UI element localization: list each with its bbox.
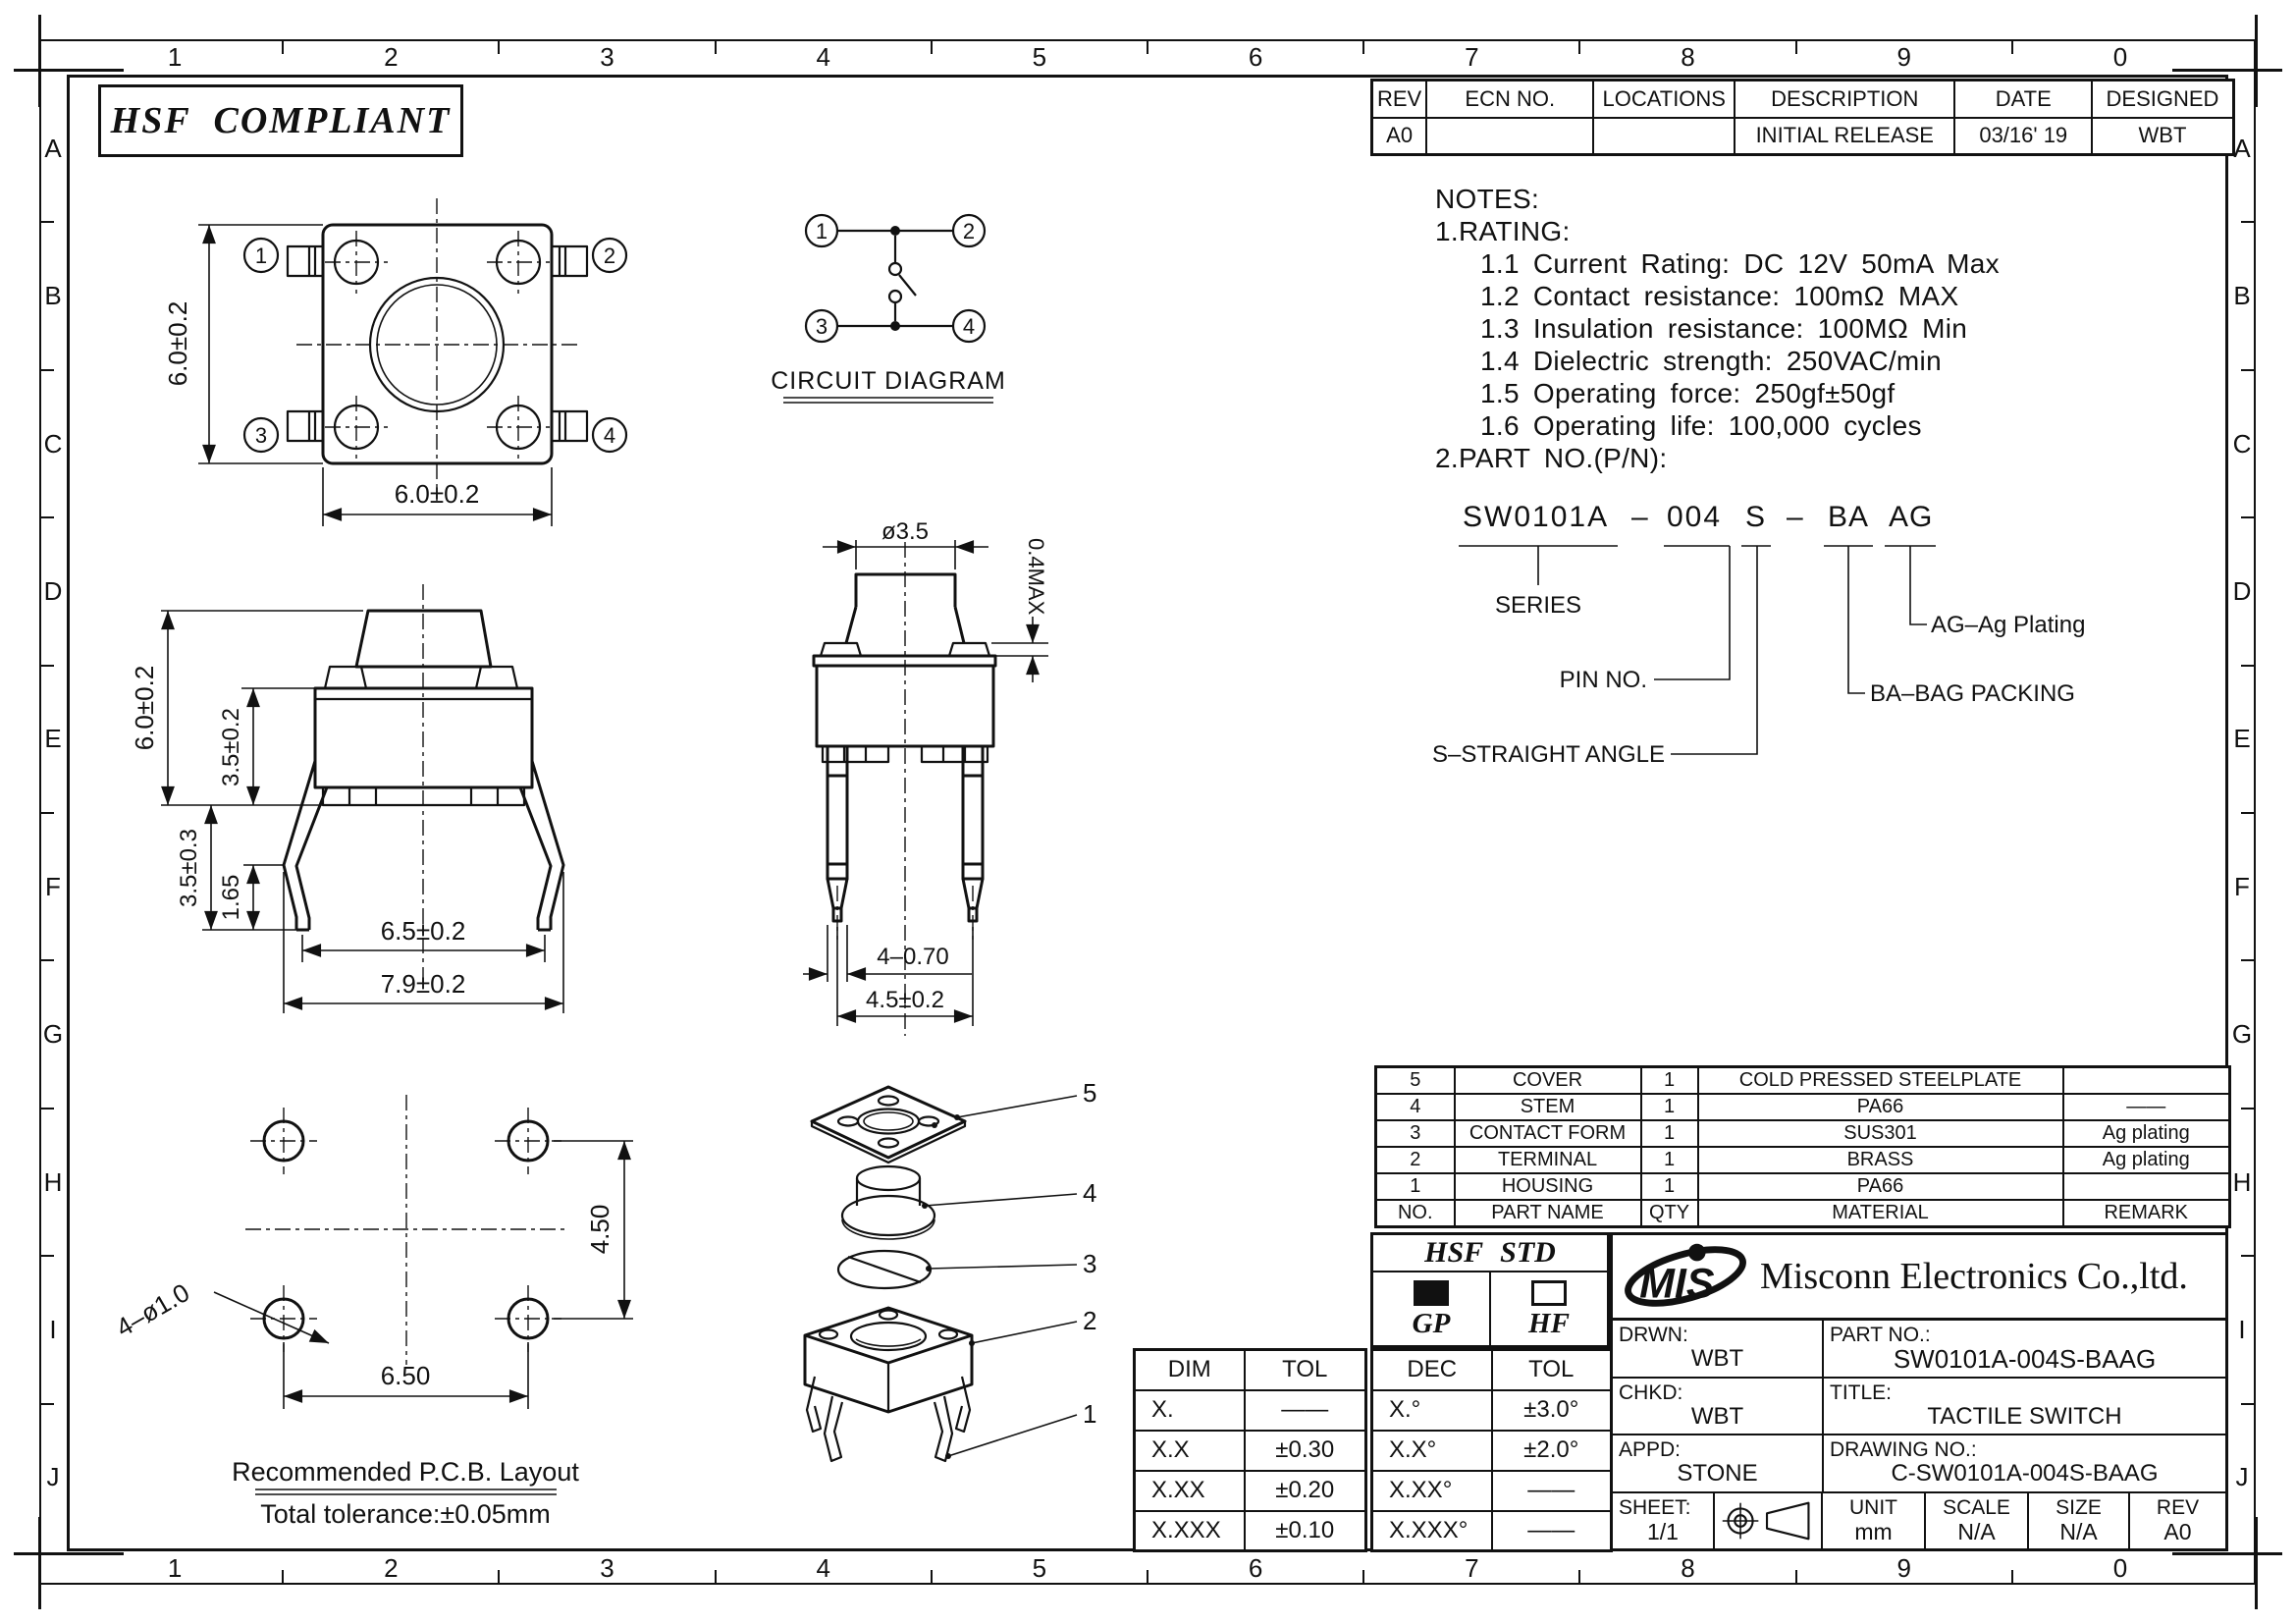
ruler-letter: G xyxy=(2228,960,2256,1108)
ruler-letter: I xyxy=(2228,1256,2256,1403)
note-item: 1.4 Dielectric strength: 250VAC/min xyxy=(1435,345,2000,377)
bom-qty: 1 xyxy=(1641,1067,1698,1094)
tol-cell: ±0.10 xyxy=(1245,1511,1366,1551)
ruler-number: 6 xyxy=(1148,1551,1363,1585)
company-name: Misconn Electronics Co.,ltd. xyxy=(1760,1255,2188,1298)
contact-point xyxy=(889,291,901,302)
pcb-subtitle: Total tolerance:±0.05mm xyxy=(260,1499,550,1529)
pn-dash: – xyxy=(1787,501,1803,533)
tol-cell: —— xyxy=(1492,1511,1612,1551)
svg-text:5: 5 xyxy=(1083,1078,1096,1108)
cover-part xyxy=(812,1087,965,1163)
bom-no: 4 xyxy=(1376,1094,1455,1120)
col-header: DESIGNED xyxy=(2092,81,2233,118)
chkd-row: CHKD: WBT TITLE: TACTILE SWITCH xyxy=(1613,1379,2225,1436)
tol-cell: ±2.0° xyxy=(1492,1431,1612,1471)
cell-locations xyxy=(1593,118,1735,155)
pn-pin-label: PIN NO. xyxy=(1560,667,1647,693)
title-block: MIS Misconn Electronics Co.,ltd. DRWN: W… xyxy=(1610,1232,2228,1551)
chkd-value: WBT xyxy=(1613,1399,1822,1435)
notes-part-heading: 2.PART NO.(P/N): xyxy=(1435,442,2000,474)
sheet-row: SHEET: 1/1 UNIT mm SCALE N/A xyxy=(1613,1493,2225,1548)
bom-material: COLD PRESSED STEELPLATE xyxy=(1698,1067,2063,1094)
bom-part: CONTACT FORM xyxy=(1455,1120,1641,1147)
ruler-number: 5 xyxy=(932,39,1148,75)
bom-row: 5 COVER 1 COLD PRESSED STEELPLATE xyxy=(1376,1067,2230,1094)
dim-outer-span: 7.9±0.2 xyxy=(381,969,466,999)
hf-empty-square-icon xyxy=(1531,1280,1567,1306)
ruler-number: 6 xyxy=(1148,39,1363,75)
dim-cell: X.X xyxy=(1135,1431,1245,1471)
dec-cell: X.XX° xyxy=(1372,1471,1492,1511)
bom-qty: 1 xyxy=(1641,1094,1698,1120)
ruler-letter: H xyxy=(39,1109,67,1256)
tol-cell: ±0.20 xyxy=(1245,1471,1366,1511)
top-bump xyxy=(325,667,366,688)
bom-qty: 1 xyxy=(1641,1147,1698,1173)
top-view: 1 2 3 4 6.0±0.2 6.0±0.2 xyxy=(128,177,677,569)
bom-no: 3 xyxy=(1376,1120,1455,1147)
bom-header-row: NO. PART NAME QTY MATERIAL REMARK xyxy=(1376,1200,2230,1227)
col-header: TOL xyxy=(1492,1350,1612,1390)
dim-cell: X.XXX xyxy=(1135,1511,1245,1551)
cell-ecn xyxy=(1426,118,1593,155)
exploded-view: 5 4 3 2 1 xyxy=(785,1060,1139,1551)
unit-cell: UNIT mm xyxy=(1823,1493,1926,1548)
tol-header-row: DEC TOL xyxy=(1372,1350,1612,1390)
svg-text:3: 3 xyxy=(255,423,267,448)
dec-tolerance-table: DEC TOL X.°±3.0° X.X°±2.0° X.XX°—— X.XXX… xyxy=(1370,1348,1613,1552)
pcb-layout: 4–ø1.0 6.50 4.50 Recommended P.C.B. Layo… xyxy=(98,1060,667,1551)
tol-cell: ±0.30 xyxy=(1245,1431,1366,1471)
drawing-sheet: 1 2 3 4 5 6 7 8 9 0 1 2 3 4 5 6 7 8 9 0 … xyxy=(0,0,2296,1624)
ruler-number: 1 xyxy=(67,1551,283,1585)
contact-point xyxy=(889,263,901,275)
col-header: LOCATIONS xyxy=(1593,81,1735,118)
ruler-bottom: 1 2 3 4 5 6 7 8 9 0 xyxy=(67,1551,2228,1585)
junction-dot xyxy=(890,321,900,331)
ruler-letter: E xyxy=(2228,666,2256,813)
pn-pin: 004 xyxy=(1667,501,1722,533)
dec-cell: X.° xyxy=(1372,1390,1492,1431)
svg-text:2: 2 xyxy=(963,219,975,244)
ruler-letter: I xyxy=(39,1256,67,1403)
dec-cell: X.XXX° xyxy=(1372,1511,1492,1551)
drawing-no-value: C-SW0101A-004S-BAAG xyxy=(1824,1456,2225,1491)
title-value: TACTILE SWITCH xyxy=(1824,1399,2225,1435)
dim-width: 6.0±0.2 xyxy=(395,479,480,509)
ruler-number: 9 xyxy=(1796,39,2012,75)
col-header: DEC xyxy=(1372,1350,1492,1390)
appd-cell: APPD: STONE xyxy=(1613,1435,1824,1491)
appd-value: STONE xyxy=(1613,1456,1822,1491)
hsf-std-title: HSF STD xyxy=(1373,1235,1607,1272)
top-bump xyxy=(821,643,861,656)
bom-no: 5 xyxy=(1376,1067,1455,1094)
svg-text:4: 4 xyxy=(1083,1178,1096,1208)
part-no-value: SW0101A-004S-BAAG xyxy=(1824,1341,2225,1377)
revision-table: REV ECN NO. LOCATIONS DESCRIPTION DATE D… xyxy=(1370,79,2235,156)
side-view: ø3.5 0.4MAX 4–0.70 4.5±0.2 xyxy=(766,520,1090,1051)
hsf-std-box: HSF STD GP HF xyxy=(1370,1232,1610,1348)
note-item: 1.5 Operating force: 250gf±50gf xyxy=(1435,377,2000,409)
unit-value: mm xyxy=(1823,1516,1924,1548)
ruler-number: 8 xyxy=(1579,1551,1795,1585)
dim-holes: 4–ø1.0 xyxy=(111,1277,194,1342)
pn-angle-label: S–STRAIGHT ANGLE xyxy=(1432,741,1665,768)
svg-text:1: 1 xyxy=(816,219,828,244)
dim-cell: X.XX xyxy=(1135,1471,1245,1511)
bom-part: TERMINAL xyxy=(1455,1147,1641,1173)
notes-rating-heading: 1.RATING: xyxy=(1435,215,2000,247)
rev-value: A0 xyxy=(2130,1516,2225,1548)
rev-cell: REV A0 xyxy=(2130,1493,2225,1548)
tol-cell: ±3.0° xyxy=(1492,1390,1612,1431)
bom-no: 2 xyxy=(1376,1147,1455,1173)
hf-label: HF xyxy=(1528,1308,1570,1340)
ruler-number: 7 xyxy=(1363,39,1579,75)
bom-row: 1 HOUSING 1 PA66 xyxy=(1376,1173,2230,1200)
revision-header-row: REV ECN NO. LOCATIONS DESCRIPTION DATE D… xyxy=(1372,81,2234,118)
tol-header-row: DIM TOL xyxy=(1135,1350,1366,1390)
pn-plating: AG xyxy=(1889,501,1933,533)
chkd-cell: CHKD: WBT xyxy=(1613,1379,1824,1435)
svg-text:3: 3 xyxy=(816,314,828,339)
bom-remark xyxy=(2063,1067,2230,1094)
svg-text:3: 3 xyxy=(1083,1249,1096,1278)
bom-table: 5 COVER 1 COLD PRESSED STEELPLATE 4 STEM… xyxy=(1374,1065,2231,1228)
circuit-wires xyxy=(837,231,953,326)
pn-packing-label: BA–BAG PACKING xyxy=(1870,680,2075,707)
notes-block: NOTES: 1.RATING: 1.1 Current Rating: DC … xyxy=(1435,183,2000,474)
dim-pitch-h: 6.50 xyxy=(381,1361,431,1390)
gp-label: GP xyxy=(1413,1308,1451,1340)
dim-pin-width: 4–0.70 xyxy=(877,944,948,970)
dim-leg-tip: 1.65 xyxy=(218,875,244,921)
tol-cell: —— xyxy=(1245,1390,1366,1431)
svg-text:1: 1 xyxy=(255,244,267,268)
col-header: MATERIAL xyxy=(1698,1200,2063,1227)
bom-part: HOUSING xyxy=(1455,1173,1641,1200)
ruler-letter: B xyxy=(39,222,67,369)
bom-row: 3 CONTACT FORM 1 SUS301 Ag plating xyxy=(1376,1120,2230,1147)
ruler-right: A B C D E F G H I J xyxy=(2228,75,2256,1551)
bom-material: SUS301 xyxy=(1698,1120,2063,1147)
ruler-number: 0 xyxy=(2012,1551,2228,1585)
circuit-title: CIRCUIT DIAGRAM xyxy=(771,367,1006,395)
bom-qty: 1 xyxy=(1641,1120,1698,1147)
col-header: PART NAME xyxy=(1455,1200,1641,1227)
scale-cell: SCALE N/A xyxy=(1926,1493,2029,1548)
bom-remark: —— xyxy=(2063,1094,2230,1120)
ruler-letter: D xyxy=(39,517,67,665)
bom-qty: 1 xyxy=(1641,1173,1698,1200)
pn-plating-label: AG–Ag Plating xyxy=(1931,612,2085,638)
title-cell: TITLE: TACTILE SWITCH xyxy=(1824,1379,2225,1435)
col-header: DATE xyxy=(1954,81,2092,118)
col-header: NO. xyxy=(1376,1200,1455,1227)
svg-text:2: 2 xyxy=(1083,1306,1096,1335)
size-value: N/A xyxy=(2029,1516,2128,1548)
notes-heading: NOTES: xyxy=(1435,183,2000,215)
size-cell: SIZE N/A xyxy=(2029,1493,2130,1548)
bom-material: BRASS xyxy=(1698,1147,2063,1173)
ruler-number: 2 xyxy=(283,1551,499,1585)
col-header: ECN NO. xyxy=(1426,81,1593,118)
bom-part: STEM xyxy=(1455,1094,1641,1120)
dim-total-height: 6.0±0.2 xyxy=(130,666,159,751)
ruler-number: 3 xyxy=(499,39,715,75)
cell-rev: A0 xyxy=(1372,118,1427,155)
ruler-letter: C xyxy=(39,370,67,517)
dim-tolerance-table: DIM TOL X.—— X.X±0.30 X.XX±0.20 X.XXX±0.… xyxy=(1133,1348,1367,1552)
bom-remark xyxy=(2063,1173,2230,1200)
ruler-letter: J xyxy=(39,1404,67,1551)
part-number-diagram: SW0101A – 004 S – BA AG SERIES PIN NO. S… xyxy=(1374,471,2120,785)
top-bump xyxy=(476,667,517,688)
junction-dot xyxy=(890,226,900,236)
ruler-number: 4 xyxy=(716,1551,932,1585)
pcb-title: Recommended P.C.B. Layout xyxy=(232,1457,579,1487)
misconn-logo-icon: MIS xyxy=(1613,1236,1760,1317)
ruler-number: 5 xyxy=(932,1551,1148,1585)
ruler-number: 7 xyxy=(1363,1551,1579,1585)
cell-description: INITIAL RELEASE xyxy=(1735,118,1954,155)
drwn-cell: DRWN: WBT xyxy=(1613,1321,1824,1377)
col-header: DESCRIPTION xyxy=(1735,81,1954,118)
dim-leg-length: 3.5±0.3 xyxy=(176,829,202,907)
col-header: TOL xyxy=(1245,1350,1366,1390)
pn-series-label: SERIES xyxy=(1495,592,1581,619)
note-item: 1.1 Current Rating: DC 12V 50mA Max xyxy=(1435,247,2000,280)
ruler-letter: F xyxy=(39,813,67,960)
sheet-cell: SHEET: 1/1 xyxy=(1613,1493,1715,1548)
bom-row: 4 STEM 1 PA66 —— xyxy=(1376,1094,2230,1120)
projection-symbol-cell xyxy=(1715,1493,1823,1548)
bom-remark: Ag plating xyxy=(2063,1120,2230,1147)
ruler-letter: C xyxy=(2228,370,2256,517)
dec-cell: X.X° xyxy=(1372,1431,1492,1471)
ruler-number: 8 xyxy=(1579,39,1795,75)
ruler-letter: F xyxy=(2228,813,2256,960)
ruler-number: 2 xyxy=(283,39,499,75)
top-bump xyxy=(949,643,989,656)
pn-series: SW0101A xyxy=(1463,501,1609,533)
cell-date: 03/16' 19 xyxy=(1954,118,2092,155)
pn-dash: – xyxy=(1631,501,1648,533)
svg-text:2: 2 xyxy=(604,244,615,268)
ruler-letter: D xyxy=(2228,517,2256,665)
col-header: REMARK xyxy=(2063,1200,2230,1227)
drawing-no-cell: DRAWING NO.: C-SW0101A-004S-BAAG xyxy=(1824,1435,2225,1491)
front-view: 6.0±0.2 3.5±0.2 3.5±0.3 1.65 6.5±0.2 7.9… xyxy=(137,569,609,1031)
note-item: 1.6 Operating life: 100,000 cycles xyxy=(1435,409,2000,442)
dimension-lines xyxy=(284,1141,633,1409)
housing-part xyxy=(805,1308,972,1461)
dim-body-height: 3.5±0.2 xyxy=(218,708,244,786)
svg-text:4: 4 xyxy=(963,314,975,339)
ruler-letter: B xyxy=(2228,222,2256,369)
circuit-diagram: 1 2 3 4 CIRCUIT DIAGRAM xyxy=(775,191,1090,417)
dim-height: 6.0±0.2 xyxy=(163,301,192,387)
ruler-number: 1 xyxy=(67,39,283,75)
gp-filled-square-icon xyxy=(1414,1280,1449,1306)
bom-part: COVER xyxy=(1455,1067,1641,1094)
tol-cell: —— xyxy=(1492,1471,1612,1511)
dim-pitch-v: 4.50 xyxy=(585,1205,614,1255)
dim-pin-pitch: 4.5±0.2 xyxy=(866,987,944,1013)
bom-remark: Ag plating xyxy=(2063,1147,2230,1173)
bom-material: PA66 xyxy=(1698,1094,2063,1120)
drwn-row: DRWN: WBT PART NO.: SW0101A-004S-BAAG xyxy=(1613,1321,2225,1379)
sheet-value: 1/1 xyxy=(1613,1516,1713,1548)
bom-row: 2 TERMINAL 1 BRASS Ag plating xyxy=(1376,1147,2230,1173)
ruler-letter: H xyxy=(2228,1109,2256,1256)
svg-text:MIS: MIS xyxy=(1639,1261,1715,1308)
stem-part xyxy=(842,1166,934,1239)
pn-angle: S xyxy=(1745,501,1765,533)
col-header: QTY xyxy=(1641,1200,1698,1227)
contact-dome-part xyxy=(838,1251,931,1288)
ruler-letter: A xyxy=(39,75,67,222)
bom-material: PA66 xyxy=(1698,1173,2063,1200)
ruler-number: 3 xyxy=(499,1551,715,1585)
col-header: DIM xyxy=(1135,1350,1245,1390)
revision-row: A0 INITIAL RELEASE 03/16' 19 WBT xyxy=(1372,118,2234,155)
pn-leader-lines xyxy=(1538,546,1927,754)
ruler-number: 9 xyxy=(1796,1551,2012,1585)
ruler-top: 1 2 3 4 5 6 7 8 9 0 xyxy=(67,39,2228,75)
gp-column: GP xyxy=(1373,1272,1489,1349)
dim-stem-height: 0.4MAX xyxy=(1024,538,1048,616)
first-angle-projection-icon xyxy=(1716,1493,1820,1548)
dim-feet-span: 6.5±0.2 xyxy=(381,916,466,946)
company-row: MIS Misconn Electronics Co.,ltd. xyxy=(1613,1235,2225,1321)
svg-text:1: 1 xyxy=(1083,1399,1096,1429)
ruler-left: A B C D E F G H I J xyxy=(39,75,67,1551)
drwn-value: WBT xyxy=(1613,1341,1822,1377)
ruler-number: 4 xyxy=(716,39,932,75)
col-header: REV xyxy=(1372,81,1427,118)
ruler-number: 0 xyxy=(2012,39,2228,75)
part-no-cell: PART NO.: SW0101A-004S-BAAG xyxy=(1824,1321,2225,1377)
dim-stem-dia: ø3.5 xyxy=(881,518,929,545)
hsf-compliant-badge: HSF COMPLIANT xyxy=(98,84,463,157)
note-item: 1.2 Contact resistance: 100mΩ MAX xyxy=(1435,280,2000,312)
ruler-letter: E xyxy=(39,666,67,813)
svg-text:4: 4 xyxy=(604,423,615,448)
part-numbers: 5 4 3 2 1 xyxy=(1083,1078,1096,1429)
appd-row: APPD: STONE DRAWING NO.: C-SW0101A-004S-… xyxy=(1613,1435,2225,1493)
cell-designed: WBT xyxy=(2092,118,2233,155)
dim-cell: X. xyxy=(1135,1390,1245,1431)
scale-value: N/A xyxy=(1926,1516,2027,1548)
ruler-letter: G xyxy=(39,960,67,1108)
hf-column: HF xyxy=(1489,1272,1607,1349)
pn-packing: BA xyxy=(1828,501,1869,533)
note-item: 1.3 Insulation resistance: 100MΩ Min xyxy=(1435,312,2000,345)
ruler-letter: J xyxy=(2228,1404,2256,1551)
bom-no: 1 xyxy=(1376,1173,1455,1200)
